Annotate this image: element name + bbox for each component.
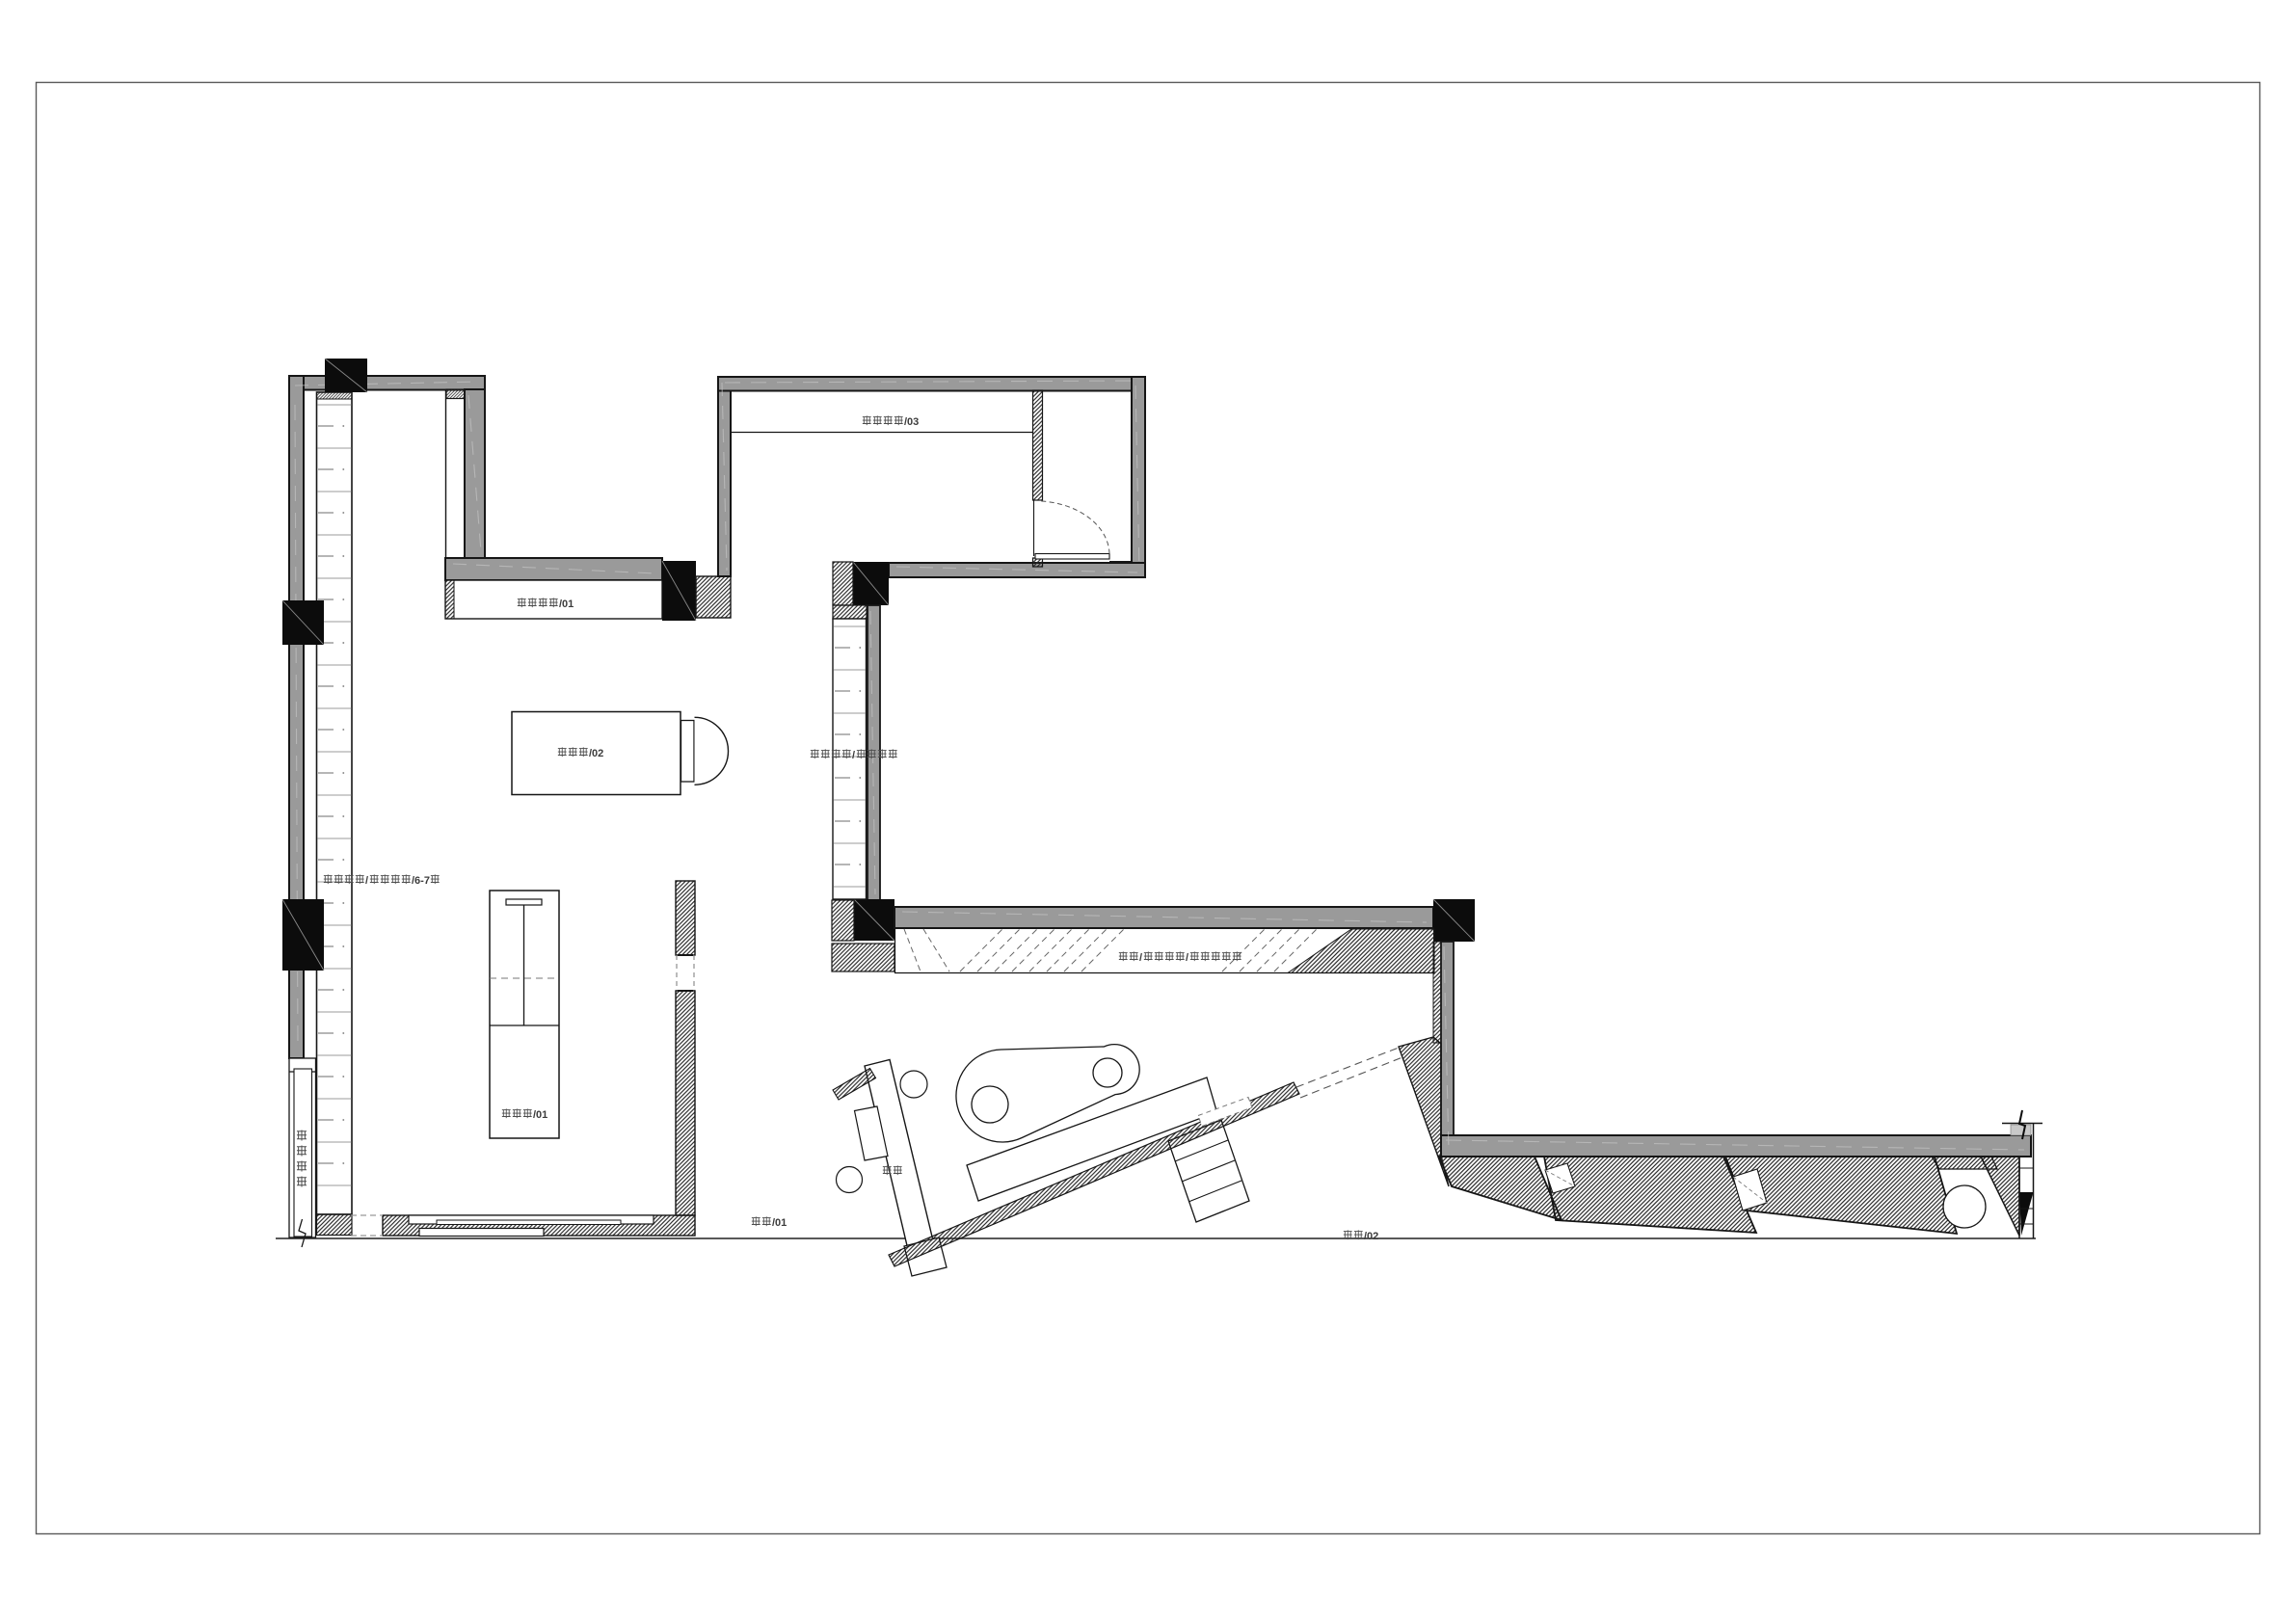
svg-text:/02: /02 [589,748,603,759]
svg-text:/: / [365,875,368,887]
svg-text:/: / [1186,952,1188,964]
svg-text:/01: /01 [559,599,574,610]
svg-text:/: / [1139,952,1142,964]
svg-text:/01: /01 [533,1109,547,1121]
svg-text:/6-7: /6-7 [412,875,430,887]
svg-text:/02: /02 [1364,1231,1378,1242]
svg-text:/03: /03 [904,416,919,428]
svg-text:/: / [852,750,855,761]
svg-text:/01: /01 [772,1217,787,1229]
